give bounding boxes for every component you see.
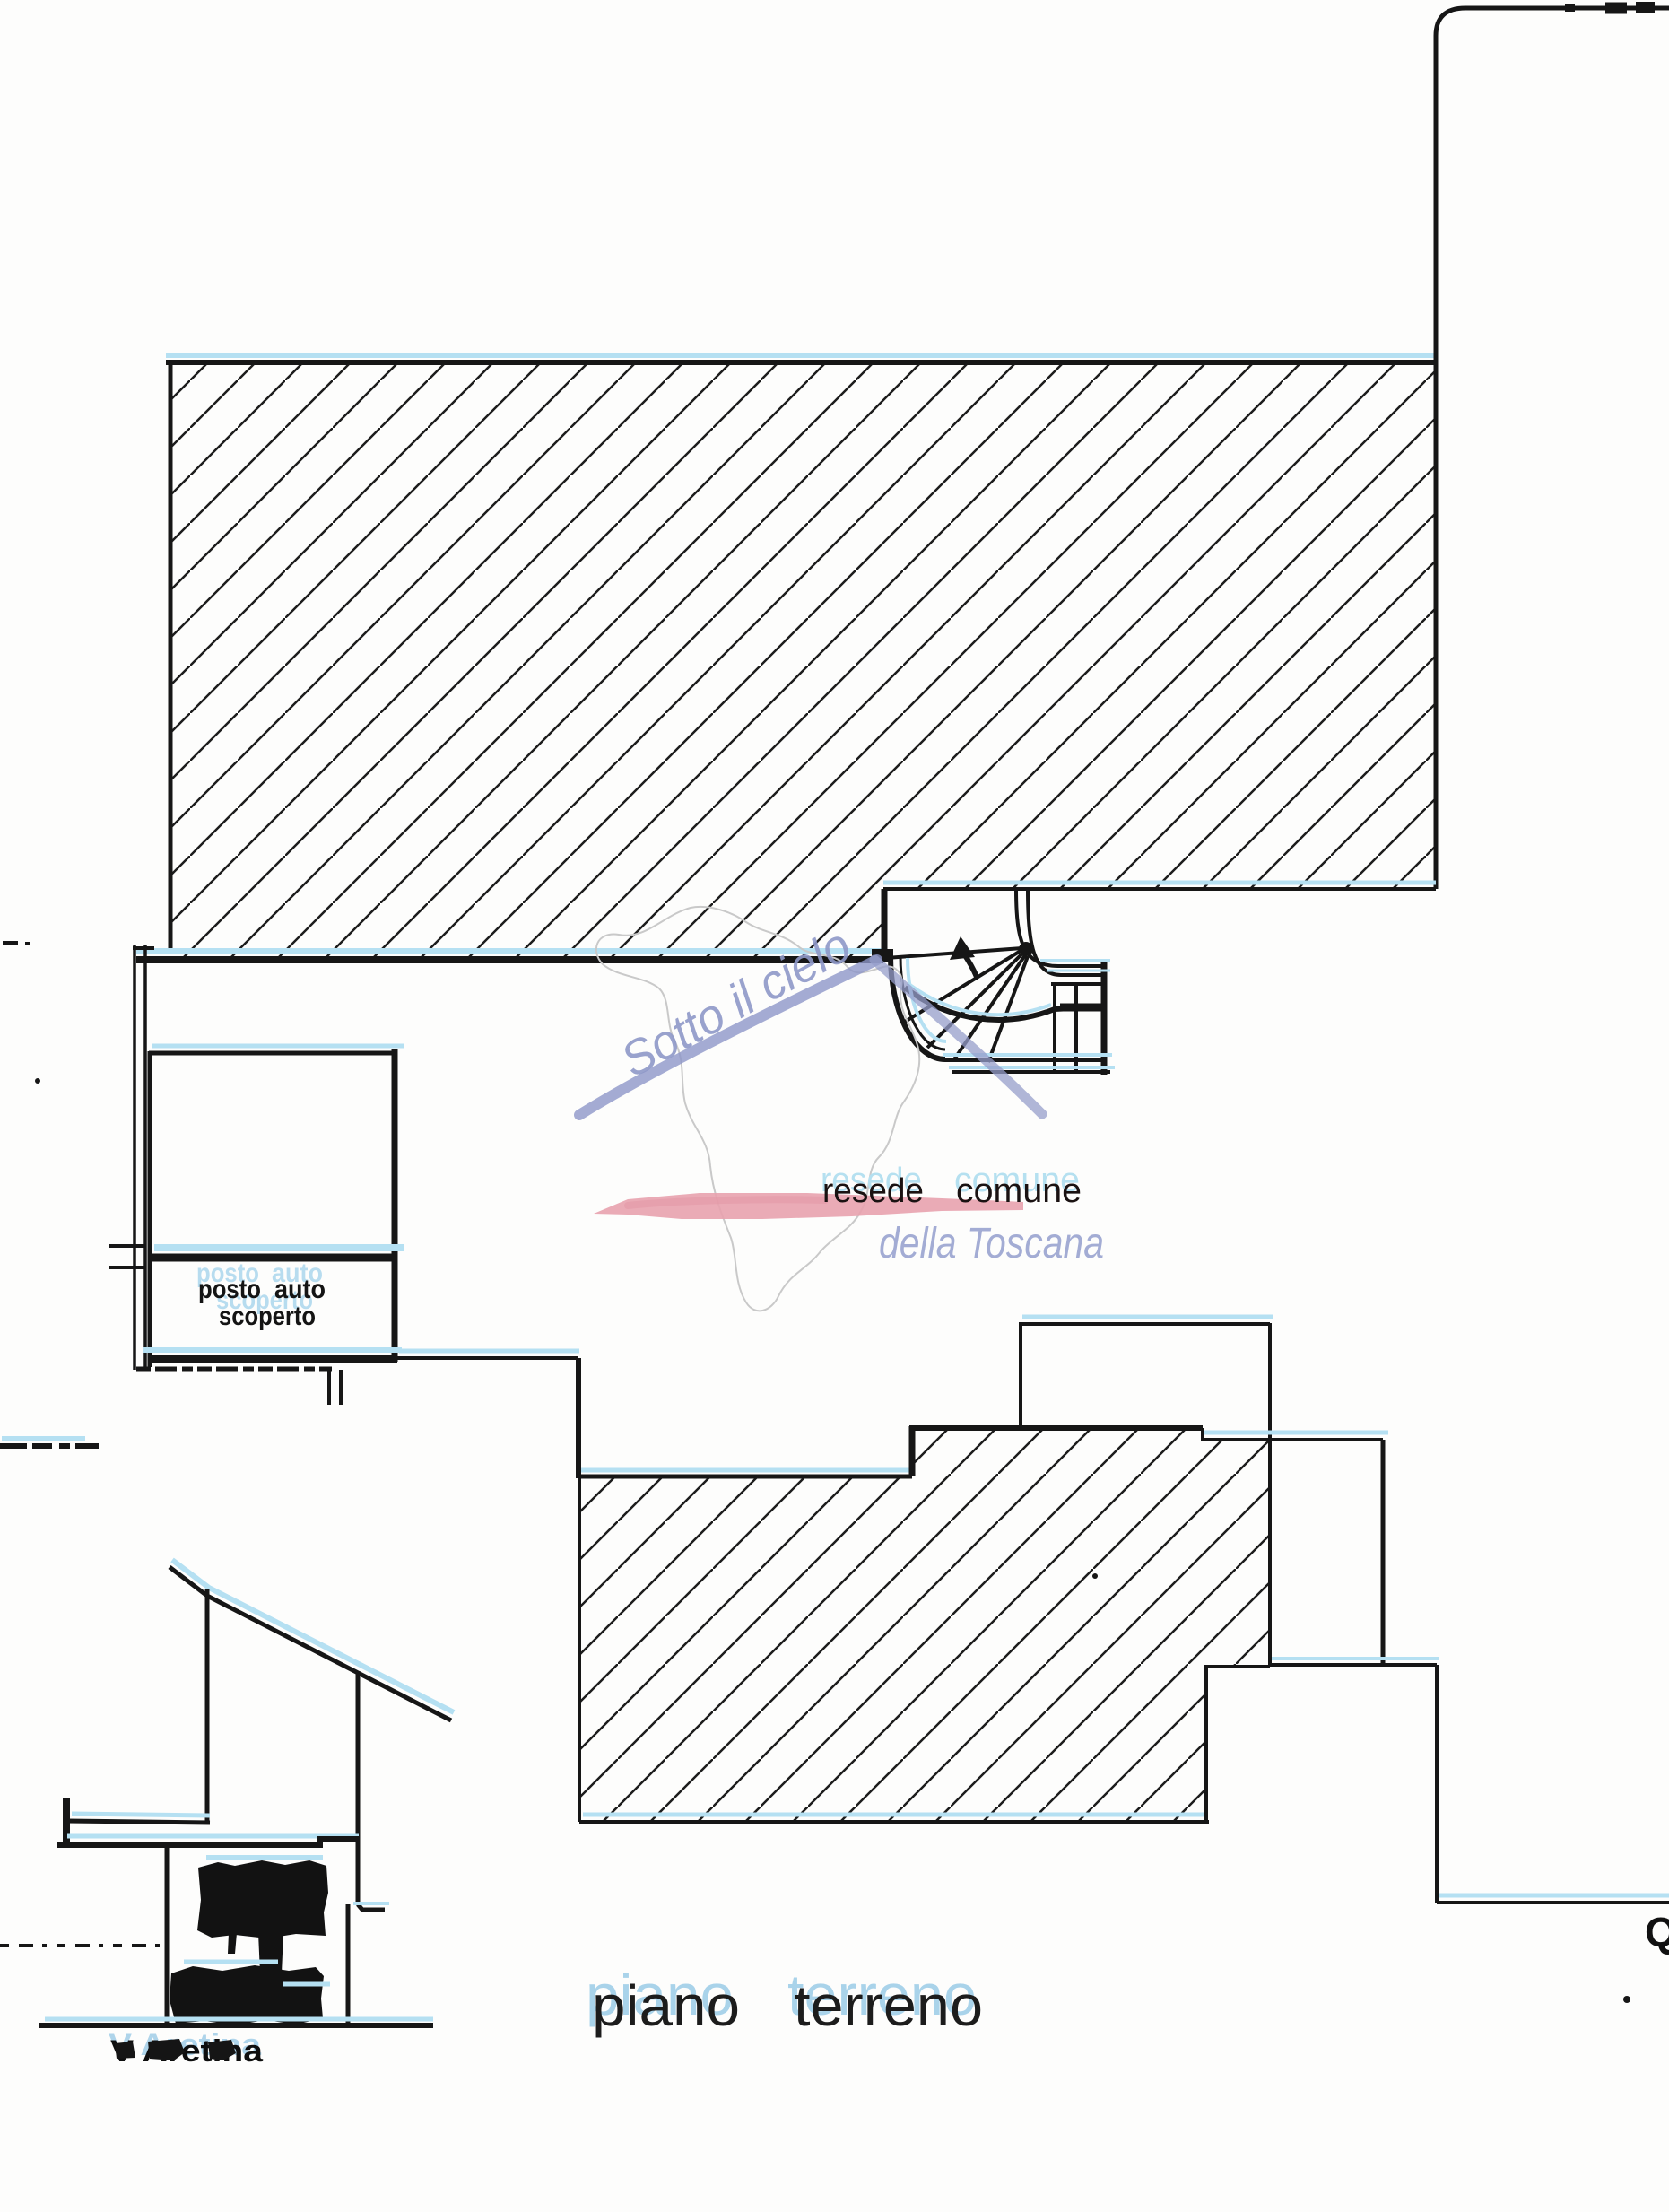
svg-text:terreno: terreno (794, 1973, 983, 2038)
svg-text:scoperto: scoperto (219, 1302, 316, 1331)
svg-text:comune: comune (956, 1172, 1082, 1210)
svg-text:piano: piano (592, 1973, 740, 2038)
svg-text:posto: posto (198, 1275, 261, 1304)
svg-text:auto: auto (274, 1275, 326, 1304)
svg-text:resede: resede (822, 1172, 924, 1210)
svg-text:Q: Q (1645, 1909, 1669, 1955)
svg-text:della Toscana: della Toscana (879, 1220, 1104, 1267)
